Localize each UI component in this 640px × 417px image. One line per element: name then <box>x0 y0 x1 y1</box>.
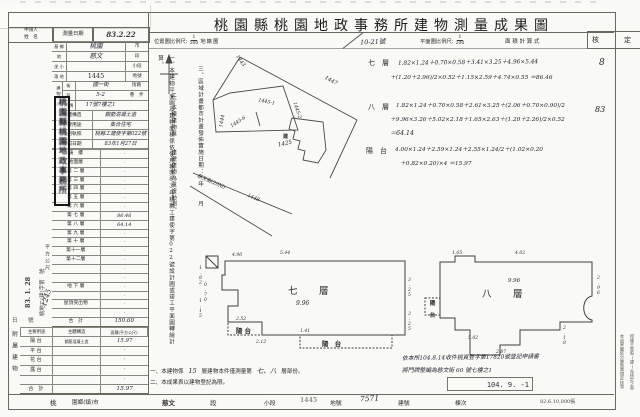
annex-row-struct <box>53 376 102 385</box>
site-row-prefix: 地 <box>52 52 67 61</box>
floor-row: 地 下 層 · <box>52 283 148 292</box>
floor-total-value: 150.60 <box>101 317 149 326</box>
location-scale-fraction: 1 500 <box>190 35 199 47</box>
annex-total-blank <box>53 385 102 394</box>
floor7-dim-left4: 2.52 <box>236 317 246 322</box>
address-row-value: 5-2 <box>76 91 125 100</box>
approval-mark-2: 83 <box>595 105 605 114</box>
address-row-value: 17號7樓之1 <box>76 101 125 110</box>
floor7-dim-top1: 4.96 <box>232 253 242 258</box>
calc-floor7-line1: 1.82×1.24＋0.70×0.58＋3.41×3.25＋4.96×5.44 <box>398 56 538 66</box>
floor-row-value: 64.14 <box>101 221 149 229</box>
footnote-1-post: 層部份。 <box>281 369 303 375</box>
footnote-1-pre: 一、本建物係 <box>150 369 184 375</box>
floor-row-label: 第 七 層 <box>52 212 101 220</box>
floor-row-label: 地 下 層 <box>52 283 101 291</box>
bottom-building-no: 7571 <box>360 394 380 404</box>
site-row-prefix: 基 鄉 <box>52 42 67 51</box>
approval-box: 核 定 <box>587 31 640 49</box>
site-row-prefix: 坐 小 <box>52 62 67 71</box>
address-row-suffix: 巷 弄 <box>125 91 148 100</box>
floor-row-value: 86.46 <box>101 212 149 220</box>
scale-row-underline <box>148 48 614 49</box>
site-row-value: 桃園 <box>67 42 125 51</box>
annex-row: 花 台 · <box>20 356 148 366</box>
site-row-value: 慈文 <box>67 52 125 61</box>
floor-total-row: 合 計 150.60 <box>52 317 148 327</box>
annex-header-use: 主要用途 <box>21 328 53 337</box>
calc-floor8-line1: 1.82×1.24＋0.70×0.58＋2.61×3.25＋(2.06＋0.70… <box>396 100 565 109</box>
floor-row-label: 第 九 層 <box>52 230 101 238</box>
cadastral-sheet-no: 10-21號 <box>360 36 386 47</box>
applicant-label-2: 姓 名 <box>9 34 53 40</box>
margin-note-a: 授權主管股(課)長核定之章 <box>628 334 637 396</box>
calc-balcony-label: 陽 台 <box>366 146 387 156</box>
parcel-line <box>330 120 357 178</box>
floor-row-label: 屋頂突出物 <box>52 300 101 308</box>
bottom-section-label: 段 <box>210 397 217 407</box>
receipt-stamp-date: 83. 1. 28 <box>24 238 32 308</box>
field-row-value: 鋼筋混凝土造 <box>93 111 148 120</box>
address-row: 段 5-2 巷 弄 <box>62 91 148 101</box>
calc-balcony-line2: ＋0.82×0.20)×4 ＝15.97 <box>400 158 472 167</box>
floor-row-value: · <box>101 265 149 273</box>
building-footprint <box>289 118 326 163</box>
bottom-parcel-label: 地號 <box>330 398 342 407</box>
floor-row-value: · <box>101 256 149 264</box>
floor-row-label <box>52 309 101 317</box>
annex-row-area: · <box>101 356 148 365</box>
applicant-header-cell: 申請人 姓 名 <box>8 27 54 43</box>
floor7-dim-bottom1: 1.41 <box>300 329 310 334</box>
annotation-line1: 依本所104.8.14收件桃資登字第17820號登記申請書 <box>402 351 539 362</box>
annex-row: 露 台 · <box>20 366 148 376</box>
bottom-unit-label: 棟次 <box>455 398 467 407</box>
annex-row-struct: 鋼筋混凝土造 <box>53 337 102 346</box>
floor-row-value: · <box>101 247 149 255</box>
margin-note-b: 本成果圖依分層負責規定核發 <box>618 334 627 396</box>
floor7-dim-bottom2: 2.12 <box>256 340 266 345</box>
address-row-prefix: 街 <box>62 81 76 90</box>
site-row-value <box>67 62 125 71</box>
annex-row-struct <box>53 347 102 356</box>
approval-mark-1: 8 <box>599 58 605 68</box>
date-stamp-box: 104. 9. -1 <box>447 377 533 391</box>
bottom-county: 桃 <box>50 397 57 407</box>
floor-row-label: 第十二層 <box>52 256 101 264</box>
survey-result-sheet: 桃園縣桃園地政事務所建物測量成果圖 位置圖比例尺: 1 500 地籍圖 10-2… <box>0 0 640 417</box>
calc-floor7-label: 七 層 <box>368 58 389 68</box>
registry-seal-stamp: 桃園縣桃園地政事務所 <box>54 96 70 206</box>
floor-row: 第 十 層 · <box>52 238 148 247</box>
calc-floor8-line3: ＝64.14 <box>390 128 414 137</box>
print-info: 82.6.10,000張 <box>540 398 575 405</box>
plan-scale-label: 平面圖比例尺: <box>420 37 454 45</box>
annex-row-use: 陽 台 <box>20 337 53 346</box>
bottom-subsection-label: 小段 <box>264 398 276 407</box>
floor-row: · <box>52 274 148 283</box>
floor8-dim2: 4.02 <box>515 251 525 256</box>
floor-row: 第 七 層 86.46 <box>52 212 148 221</box>
scan-top-smudge <box>20 1 600 3</box>
floor-total-label: 合 計 <box>52 317 101 326</box>
floor-row: 第 八 層 64.14 <box>52 221 148 230</box>
floor8-area: 9.96 <box>508 278 520 284</box>
footnote-1-mid: 層建物本件僅測量第 <box>202 369 252 375</box>
floor8-label: 八 層 <box>482 286 529 300</box>
registry-seal-text: 桃園縣桃園地政事務所 <box>57 98 69 195</box>
floor-row-value: · <box>101 309 149 317</box>
floor7-dim-right2: 3.25 <box>407 312 412 332</box>
annex-row-area: 15.97 <box>101 337 148 346</box>
floor-row: 屋頂突出物 · <box>52 300 148 309</box>
floor-row-value: · <box>101 283 149 291</box>
floor8-dim3: 2.96 <box>596 276 601 296</box>
bottom-building-label: 建號 <box>398 398 410 407</box>
subject-parcel <box>213 86 298 132</box>
floor-row-value: · <box>101 203 149 211</box>
parcel-line <box>213 57 240 100</box>
site-row-suffix: 小段 <box>125 62 148 71</box>
floor7-dim-left3: 1.15 <box>198 299 203 319</box>
floor7-shaft-diagonal <box>206 256 218 268</box>
annex-total-value: 15.97 <box>101 385 148 394</box>
floor7-balcony-left-label: 陽 台 <box>236 326 251 335</box>
floor7-label: 七 層 <box>288 283 335 297</box>
map-building-mark: 建 <box>283 133 288 140</box>
floor-row-value: · <box>101 194 149 202</box>
annotation-line2: 將門牌整編為慈文街 60 號七樓之1 <box>402 365 492 374</box>
floor-row-value: · <box>101 185 149 193</box>
field-row-value: 集合住宅 <box>93 121 148 130</box>
page-title: 桃園縣桃園地政事務所建物測量成果圖 <box>158 15 610 32</box>
receipt-stamp-tail: 日 號 <box>12 316 34 324</box>
annex-row-area: · <box>101 376 148 385</box>
floor7-balcony-bottom-label: 陽 台 <box>322 339 341 348</box>
site-row-prefix: 落 地 <box>52 72 67 81</box>
address-row-suffix: 街路 <box>125 81 148 90</box>
bottom-parcel: 1445 <box>300 397 317 404</box>
floor-row-value: · <box>101 300 149 308</box>
address-rows: 街 國一街 街路 段 5-2 巷 弄 門 牌 17號7樓之1 <box>62 81 148 111</box>
floor8-dim6: 5.02 <box>468 336 478 341</box>
form-divider <box>148 12 149 394</box>
floor-row: 第十一層 · <box>52 247 148 256</box>
calc-floor8-line2: ＋9.96×3.26＋5.02×2.18＋1.65×2.63＋(1.20＋2.2… <box>390 114 565 123</box>
site-row: 坐 小 小段 <box>52 62 148 72</box>
floor7-area: 9.96 <box>296 300 309 307</box>
floor-row-value: · <box>101 177 149 185</box>
floor-row-label: 第 八 層 <box>52 221 101 229</box>
footnote-2: 二、本成果表以建物登記為限。 <box>150 378 228 386</box>
site-rows: 基 鄉 桃園 市 地 慈文 段 坐 小 小段 落 地 1445 地號 <box>52 41 148 82</box>
floor-row-value: · <box>101 159 149 167</box>
title-underline <box>148 32 614 33</box>
floor8-plan <box>425 250 605 360</box>
floor7-balcony-bottom-outline <box>300 335 392 348</box>
site-row-value: 1445 <box>67 72 125 81</box>
floor7-outline <box>222 261 405 335</box>
floor-row-value: · <box>101 292 149 300</box>
survey-date-label: 測量日期 <box>53 28 93 41</box>
annex-row-area: · <box>101 347 148 356</box>
floor-row-label: 第十一層 <box>52 247 101 255</box>
site-row: 基 鄉 桃園 市 <box>52 42 148 52</box>
annex-total-label: 合 計 <box>20 385 53 394</box>
plan-scale: 平面圖比例尺: 1 200 <box>420 35 466 47</box>
floor-row: · <box>52 265 148 274</box>
plan-scale-fraction: 1 200 <box>456 35 465 47</box>
floor-row-label <box>52 274 101 282</box>
floor-row: 第十二層 · <box>52 256 148 265</box>
site-row-suffix: 地號 <box>125 72 148 81</box>
calc-balcony-line1: 4.00×1.24＋2.59×1.24＋2.55×1.24/2＋(1.02×0.… <box>395 144 543 153</box>
floor7-dim-right1: 3.25 <box>407 278 412 298</box>
floor-row-value: · <box>101 168 149 176</box>
bottom-section: 慈文 <box>162 397 175 407</box>
annex-table: 陽 台 鋼筋混凝土造 15.97 平 台 · 花 台 · 露 台 · <box>20 336 148 385</box>
annex-row-area: · <box>101 366 148 375</box>
floor-row: · <box>52 292 148 301</box>
bottom-strip-line <box>8 394 614 395</box>
site-row-suffix: 市 <box>125 42 148 51</box>
floor-row-label: 第 十 層 <box>52 238 101 246</box>
annex-row-use: 露 台 <box>20 366 53 375</box>
annex-header-area: 面積(平方公尺) <box>101 328 147 337</box>
approval-label: 核 定 <box>588 35 640 45</box>
location-scale: 位置圖比例尺: 1 500 地籍圖 <box>154 35 219 47</box>
floor-row-value: · <box>101 230 149 238</box>
floor-row-label <box>52 292 101 300</box>
floor7-dim-top2: 5.44 <box>280 251 290 256</box>
address-row-suffix <box>125 101 148 110</box>
floor-row-value: · <box>101 274 149 282</box>
floor8-outline <box>440 256 592 355</box>
address-row: 門 牌 17號7樓之1 <box>62 101 148 111</box>
footnote-1: 一、本建物係 15 層建物本件僅測量第 七、八 層部份。 <box>150 365 304 375</box>
field-row-value: 桃縣工建使字第022號 <box>93 130 148 139</box>
field-row-value: 83年1月27日 <box>93 140 148 149</box>
calc-floor7-line2: ＋(1.20＋2.96)/2×0.52＋1.15×2.59＋4.74×0.55 … <box>390 72 553 81</box>
footnote-1-hand1: 15 <box>185 367 199 375</box>
floor8-dim4: 2.18 <box>562 326 567 346</box>
annex-group-label: 附屬建物 <box>10 331 18 391</box>
address-row-value: 國一街 <box>76 81 125 90</box>
cadastral-label: 地籍圖 <box>200 37 219 45</box>
location-scale-label: 位置圖比例尺: <box>154 37 188 45</box>
annex-row: 平 台 · <box>20 347 148 357</box>
floor-row-value: · <box>101 238 149 246</box>
annex-header: 主要用途 主體構造 面積(平方公尺) <box>20 327 148 337</box>
floor8-balcony-label: 陽 台 <box>427 300 436 318</box>
annex-row-struct <box>53 366 102 375</box>
north-arrow-head <box>166 55 172 63</box>
floor-row-value: · <box>101 150 149 158</box>
road-edge <box>190 186 272 236</box>
annex-row-use: 平 台 <box>20 347 53 356</box>
floor7-dim-left2: 0.70 <box>203 283 208 303</box>
survey-date-value: 83.2.22 <box>93 28 149 41</box>
annex-row-use: 花 台 <box>20 356 53 365</box>
area-calc-label: 面 積 計 算 式 <box>505 37 540 45</box>
annex-row-struct <box>53 356 102 365</box>
date-stamp-value: 104. 9. -1 <box>448 378 532 389</box>
parcel-tick <box>256 112 260 126</box>
annex-row: 陽 台 鋼筋混凝土造 15.97 <box>20 337 148 347</box>
footnote-1-hand2: 七、八 <box>254 367 280 375</box>
address-row: 街 國一街 街路 <box>62 81 148 91</box>
floor8-dim1: 1.65 <box>452 251 462 256</box>
bottom-township: 園鄉(鎮)市 <box>72 398 99 406</box>
annex-row-use <box>20 376 53 385</box>
site-row-suffix: 段 <box>125 52 148 61</box>
calc-floor8-label: 八 層 <box>368 102 389 112</box>
site-row: 地 慈文 段 <box>52 52 148 62</box>
annex-header-struct: 主體構造 <box>53 328 101 337</box>
annex-total-row: 合 計 15.97 <box>20 385 148 395</box>
floor-row: 第 九 層 · <box>52 230 148 239</box>
